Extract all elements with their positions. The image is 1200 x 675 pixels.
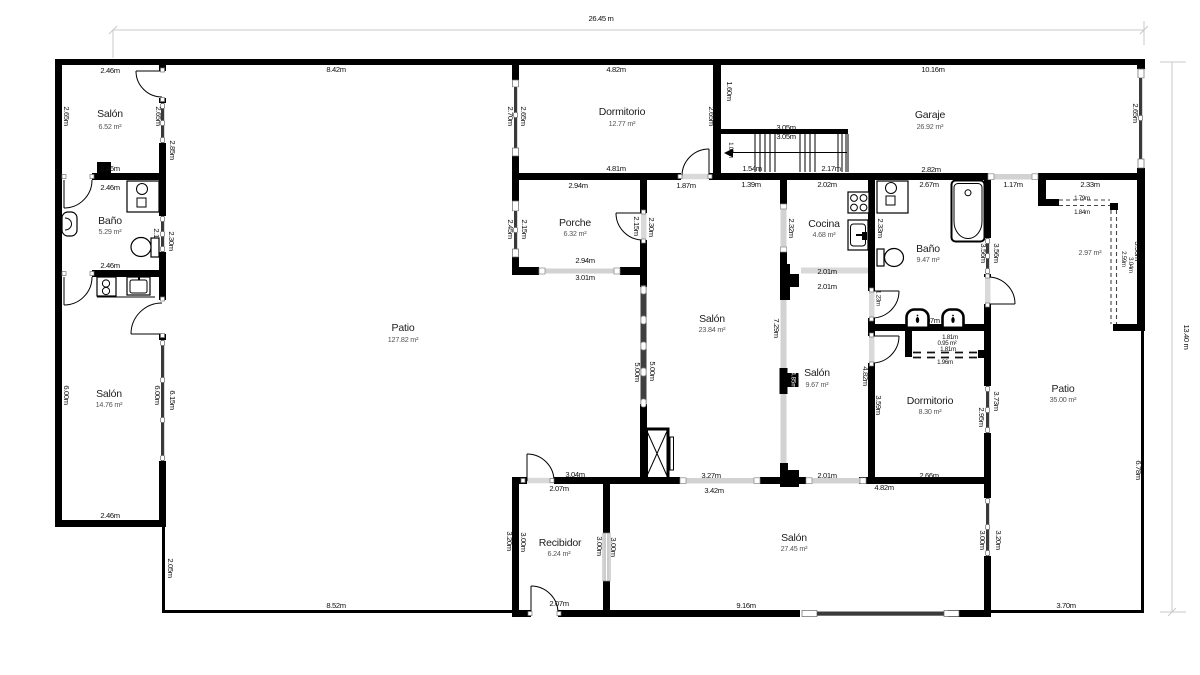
svg-text:Patio: Patio <box>1052 383 1075 395</box>
svg-text:1.23m: 1.23m <box>875 290 882 306</box>
svg-text:1.87m: 1.87m <box>676 181 695 190</box>
svg-text:2.46m: 2.46m <box>100 164 119 173</box>
svg-text:2.70m: 2.70m <box>506 106 515 125</box>
svg-text:6.15m: 6.15m <box>168 390 177 409</box>
svg-text:3.00m: 3.00m <box>595 536 604 555</box>
svg-text:2.32m: 2.32m <box>787 218 796 237</box>
svg-text:Salón: Salón <box>804 367 830 379</box>
svg-text:2.46m: 2.46m <box>100 66 119 75</box>
svg-text:2.65m: 2.65m <box>519 106 528 125</box>
svg-text:1.84m: 1.84m <box>1074 209 1090 216</box>
svg-text:2.07m: 2.07m <box>549 484 568 493</box>
svg-text:2.94m: 2.94m <box>568 181 587 190</box>
svg-text:3.42m: 3.42m <box>704 486 723 495</box>
svg-text:35.00 m²: 35.00 m² <box>1050 395 1078 404</box>
svg-text:2.65m: 2.65m <box>62 106 71 125</box>
svg-text:6.24 m²: 6.24 m² <box>548 549 572 558</box>
svg-text:2.97 m²: 2.97 m² <box>1079 248 1103 257</box>
svg-text:27.45 m²: 27.45 m² <box>781 544 809 553</box>
svg-text:8.30 m²: 8.30 m² <box>919 407 943 416</box>
svg-text:2.02m: 2.02m <box>817 180 836 189</box>
svg-text:4.81m: 4.81m <box>606 164 625 173</box>
svg-text:2.30m: 2.30m <box>647 217 656 236</box>
svg-text:2.01m: 2.01m <box>817 471 836 480</box>
svg-text:3.20m: 3.20m <box>505 531 514 550</box>
svg-text:14.76 m²: 14.76 m² <box>96 400 124 409</box>
svg-text:12.77 m²: 12.77 m² <box>609 119 637 128</box>
svg-text:3.20m: 3.20m <box>994 530 1003 549</box>
svg-text:6.00m: 6.00m <box>153 385 162 404</box>
svg-text:2.15m: 2.15m <box>632 216 641 235</box>
svg-text:8.42m: 8.42m <box>326 65 345 74</box>
svg-text:6.52 m²: 6.52 m² <box>99 122 123 131</box>
svg-text:2.01m: 2.01m <box>817 282 836 291</box>
svg-text:3.01m: 3.01m <box>575 273 594 282</box>
svg-text:1.17m: 1.17m <box>1003 180 1022 189</box>
svg-text:2.05m: 2.05m <box>166 558 175 577</box>
svg-text:3.27m: 3.27m <box>701 471 720 480</box>
svg-text:9.67 m²: 9.67 m² <box>806 380 830 389</box>
svg-text:3.05m: 3.05m <box>776 123 795 132</box>
svg-text:3.04m: 3.04m <box>565 470 584 479</box>
svg-text:Dormitorio: Dormitorio <box>599 106 646 118</box>
svg-text:Baño: Baño <box>98 215 122 227</box>
svg-text:4.85m: 4.85m <box>790 372 796 389</box>
svg-text:2.65m: 2.65m <box>707 106 716 125</box>
svg-text:4.68 m²: 4.68 m² <box>813 230 837 239</box>
svg-text:2.46m: 2.46m <box>100 511 119 520</box>
svg-text:Dormitorio: Dormitorio <box>907 395 954 407</box>
svg-text:5.29 m²: 5.29 m² <box>99 227 123 236</box>
svg-text:1.60m: 1.60m <box>725 81 734 100</box>
svg-text:Cocina: Cocina <box>808 218 840 230</box>
svg-text:2.65m: 2.65m <box>154 106 163 125</box>
svg-text:9.16m: 9.16m <box>736 601 755 610</box>
svg-text:3.04m: 3.04m <box>1127 257 1134 273</box>
svg-text:Baño: Baño <box>916 243 940 255</box>
svg-text:5.00m: 5.00m <box>633 362 642 381</box>
svg-text:23.84 m²: 23.84 m² <box>699 325 727 334</box>
svg-text:Garaje: Garaje <box>915 109 946 121</box>
svg-text:2.33m: 2.33m <box>876 218 885 237</box>
svg-text:1.07m: 1.07m <box>727 142 734 158</box>
svg-text:2.46m: 2.46m <box>100 261 119 270</box>
svg-text:3.73m: 3.73m <box>992 391 1001 410</box>
svg-text:127.82 m²: 127.82 m² <box>388 335 419 344</box>
svg-text:2.46m: 2.46m <box>100 183 119 192</box>
svg-text:3.00m: 3.00m <box>978 530 987 549</box>
svg-text:26.92 m²: 26.92 m² <box>917 122 945 131</box>
svg-text:Salón: Salón <box>699 313 725 325</box>
svg-text:Salón: Salón <box>97 108 123 120</box>
svg-text:2.59m: 2.59m <box>1120 251 1127 267</box>
svg-text:7.29m: 7.29m <box>772 318 781 337</box>
svg-text:1.79m: 1.79m <box>1074 195 1090 202</box>
svg-text:3.05m: 3.05m <box>776 132 795 141</box>
svg-text:4.82m: 4.82m <box>606 65 625 74</box>
svg-text:1.81m: 1.81m <box>940 346 956 353</box>
svg-text:6.32 m²: 6.32 m² <box>564 229 588 238</box>
svg-text:1.96m: 1.96m <box>937 359 953 366</box>
svg-text:2.95m: 2.95m <box>977 407 986 426</box>
svg-text:1.54m: 1.54m <box>742 164 761 173</box>
svg-text:2.82m: 2.82m <box>921 165 940 174</box>
svg-text:2.30m: 2.30m <box>167 231 176 250</box>
svg-text:Patio: Patio <box>392 322 415 334</box>
svg-text:2.66m: 2.66m <box>919 471 938 480</box>
svg-text:3.56m: 3.56m <box>979 243 988 262</box>
svg-text:2.94m: 2.94m <box>575 256 594 265</box>
svg-text:2.15m: 2.15m <box>520 219 529 238</box>
svg-text:3.56m: 3.56m <box>992 243 1001 262</box>
svg-text:6.00m: 6.00m <box>62 385 71 404</box>
svg-text:10.16m: 10.16m <box>921 65 944 74</box>
svg-text:3.59m: 3.59m <box>874 395 883 414</box>
svg-text:2.01m: 2.01m <box>817 267 836 276</box>
svg-text:1.39m: 1.39m <box>741 180 760 189</box>
svg-text:3.00m: 3.00m <box>609 537 618 556</box>
svg-text:6.78m: 6.78m <box>1134 460 1143 479</box>
svg-text:4.82m: 4.82m <box>874 483 893 492</box>
svg-text:2.33m: 2.33m <box>1080 180 1099 189</box>
svg-text:26.45 m: 26.45 m <box>589 14 614 23</box>
svg-text:4.82m: 4.82m <box>861 366 870 385</box>
svg-text:5.00m: 5.00m <box>648 361 657 380</box>
svg-text:2.65m: 2.65m <box>1131 103 1140 122</box>
svg-text:2.17m: 2.17m <box>821 164 840 173</box>
svg-text:Salón: Salón <box>96 388 122 400</box>
svg-text:2.45m: 2.45m <box>506 219 515 238</box>
svg-text:3.70m: 3.70m <box>1056 601 1075 610</box>
svg-text:8.52m: 8.52m <box>326 601 345 610</box>
svg-text:Recibidor: Recibidor <box>539 537 582 549</box>
svg-text:2.67m: 2.67m <box>919 180 938 189</box>
svg-text:3.56m: 3.56m <box>1133 241 1142 260</box>
svg-text:3.00m: 3.00m <box>519 532 528 551</box>
svg-text:Porche: Porche <box>559 217 591 229</box>
svg-text:2.07m: 2.07m <box>549 599 568 608</box>
svg-text:9.47 m²: 9.47 m² <box>917 255 941 264</box>
svg-text:13.40 m: 13.40 m <box>1182 325 1191 350</box>
svg-text:Salón: Salón <box>781 532 807 544</box>
svg-text:2.85m: 2.85m <box>168 140 177 159</box>
